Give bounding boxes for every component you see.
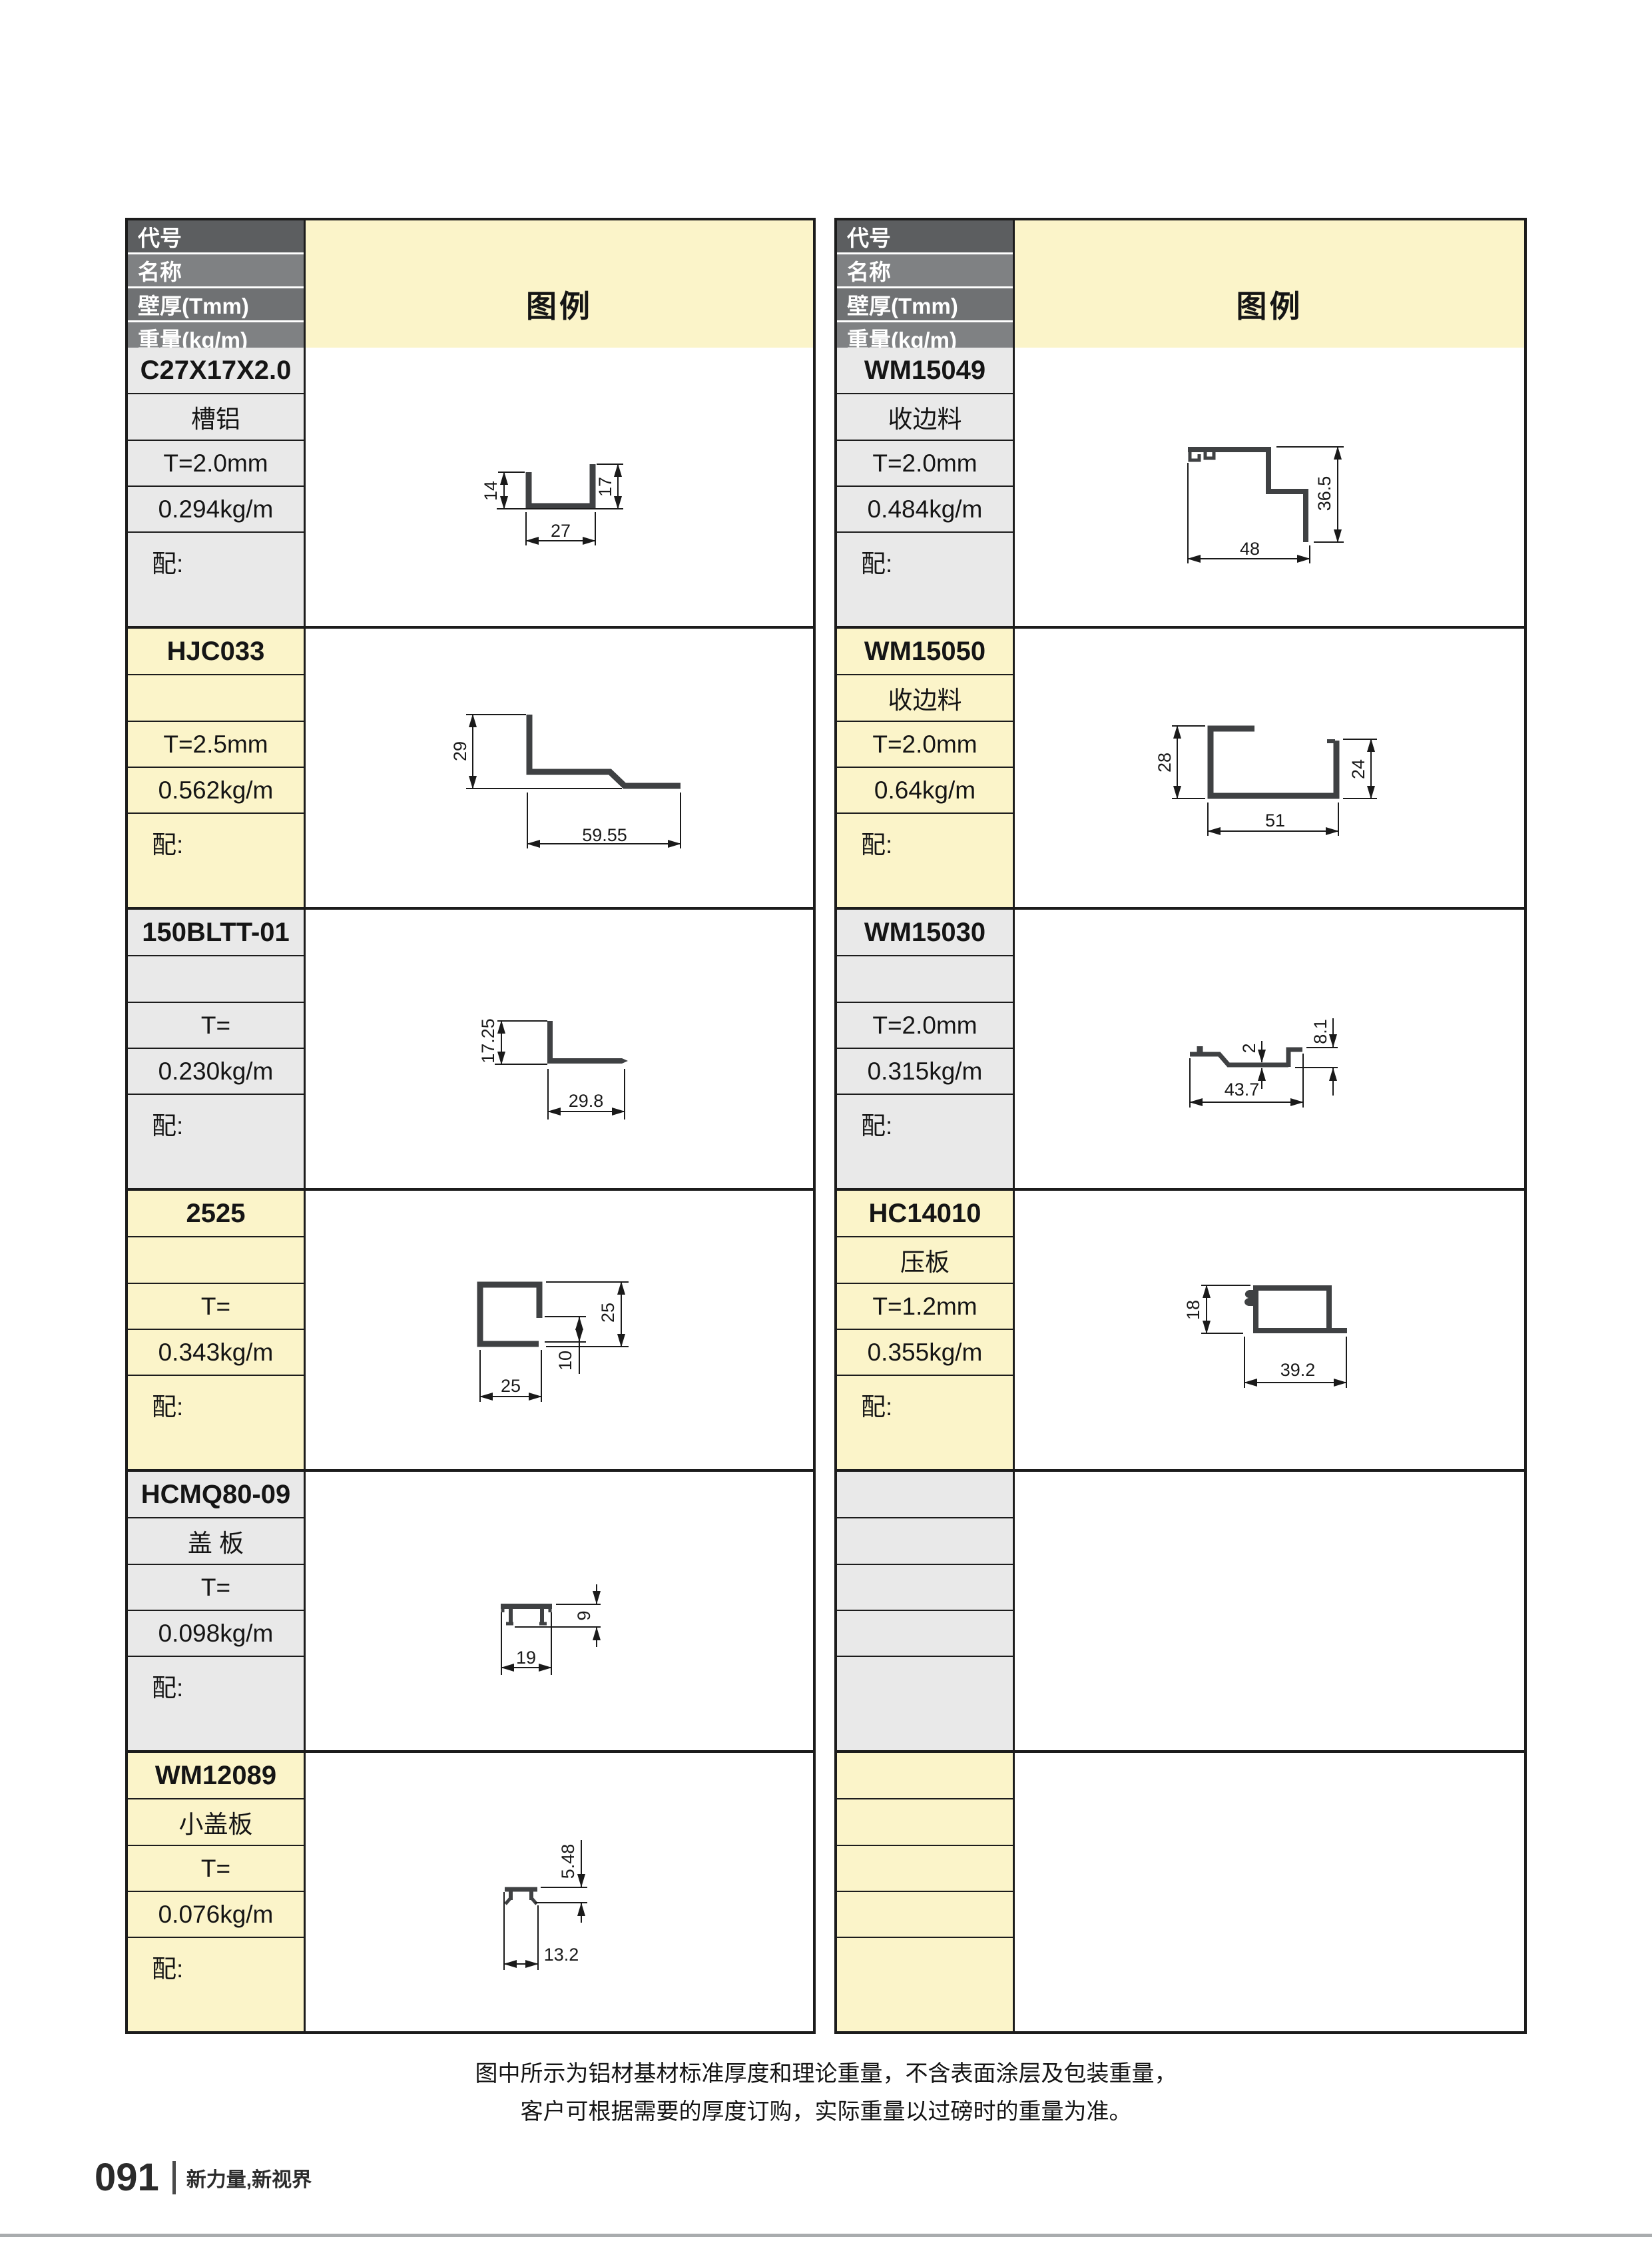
dim-label: 14 — [481, 481, 501, 501]
profile-thickness: T=2.0mm — [837, 441, 1013, 487]
profile-block-wm15050: WM15050 收边料 T=2.0mm 0.64kg/m 配: 28 24 — [837, 629, 1524, 910]
profile-code: HC14010 — [837, 1191, 1013, 1237]
footer-divider — [172, 2161, 176, 2194]
dim-label: 25 — [598, 1303, 618, 1323]
dim-label: 43.7 — [1224, 1080, 1259, 1100]
profile-match: 配: — [837, 1376, 1013, 1469]
profile-drawing-cell: 28 24 51 — [1013, 629, 1524, 907]
dim-label: 9 — [574, 1610, 594, 1620]
profile-name: 收边料 — [837, 394, 1013, 441]
profile-code — [837, 1472, 1013, 1518]
profile-name: 槽铝 — [128, 394, 304, 441]
profile-block-empty — [837, 1472, 1524, 1753]
profile-drawing-cell: 29 59.55 — [304, 629, 813, 907]
dim-label: 24 — [1348, 759, 1368, 779]
profile-thickness: T= — [128, 1565, 304, 1611]
profile-thickness: T= — [128, 1284, 304, 1330]
profile-block-150bltt01: 150BLTT-01 T= 0.230kg/m 配: 17.25 29. — [128, 910, 813, 1191]
profile-weight: 0.355kg/m — [837, 1330, 1013, 1376]
dim-label: 18 — [1183, 1300, 1203, 1320]
profile-match: 配: — [837, 814, 1013, 907]
profile-drawing-cell: 17.25 29.8 — [304, 910, 813, 1188]
profile-weight: 0.484kg/m — [837, 487, 1013, 533]
profile-code: WM15030 — [837, 910, 1013, 956]
profile-match: 配: — [128, 533, 304, 626]
profile-name: 收边料 — [837, 675, 1013, 722]
profile-drawing-cell: 18 39.2 — [1013, 1191, 1524, 1469]
profile-drawing-cell: 9 19 — [304, 1472, 813, 1750]
dim-label: 2 — [1239, 1043, 1259, 1053]
dim-label: 48 — [1239, 539, 1259, 559]
profile-code: 150BLTT-01 — [128, 910, 304, 956]
profile-block-empty — [837, 1753, 1524, 2031]
profile-match: 配: — [837, 1095, 1013, 1188]
profile-name — [837, 956, 1013, 1003]
profile-code: HCMQ80-09 — [128, 1472, 304, 1518]
dim-label: 29.8 — [569, 1091, 604, 1111]
header-label-code: 代号 — [837, 220, 1013, 252]
small-cover-drawing: 5.48 13.2 — [439, 1805, 679, 1979]
edge-trim-u-drawing: 28 24 51 — [1123, 688, 1416, 848]
profile-name: 盖 板 — [128, 1518, 304, 1565]
profile-block-2525: 2525 T= 0.343kg/m 配: 25 1 — [128, 1191, 813, 1472]
profile-thickness: T=2.0mm — [837, 722, 1013, 768]
dim-label: 28 — [1155, 753, 1175, 773]
profile-thickness: T=1.2mm — [837, 1284, 1013, 1330]
dim-label: 36.5 — [1314, 476, 1334, 511]
profile-code — [837, 1753, 1013, 1799]
l-step-drawing: 29 59.55 — [413, 685, 706, 851]
profile-code: HJC033 — [128, 629, 304, 675]
profile-block-hjc033: HJC033 T=2.5mm 0.562kg/m 配: 29 59.55 — [128, 629, 813, 910]
profile-code: 2525 — [128, 1191, 304, 1237]
tray-profile-drawing: 2 8.1 43.7 — [1123, 982, 1416, 1116]
profile-thickness: T=2.0mm — [837, 1003, 1013, 1049]
profile-code: WM15049 — [837, 348, 1013, 394]
profile-thickness — [837, 1565, 1013, 1611]
profile-drawing-cell: 5.48 13.2 — [304, 1753, 813, 2031]
profile-thickness: T=2.5mm — [128, 722, 304, 768]
profile-match: 配: — [837, 533, 1013, 626]
header-label-code: 代号 — [128, 220, 304, 252]
profile-name: 小盖板 — [128, 1799, 304, 1846]
dim-label: 25 — [501, 1376, 521, 1396]
profile-name — [837, 1799, 1013, 1846]
profile-weight: 0.562kg/m — [128, 768, 304, 814]
dim-label: 51 — [1264, 810, 1284, 830]
u-channel-drawing: 14 17 27 — [426, 407, 692, 567]
dim-label: 59.55 — [582, 825, 627, 845]
catalog-page: 代号 名称 壁厚(Tmm) 重量(kg/m) 配套 图例 C27X17X2.0 … — [0, 0, 1652, 2241]
profile-block-c27x17x2: C27X17X2.0 槽铝 T=2.0mm 0.294kg/m 配: 14 17 — [128, 348, 813, 629]
profile-match — [837, 1657, 1013, 1750]
header-label-name: 名称 — [128, 254, 304, 286]
square-tube-drawing: 25 10 25 — [426, 1243, 692, 1417]
profile-table-left: 代号 名称 壁厚(Tmm) 重量(kg/m) 配套 图例 C27X17X2.0 … — [125, 218, 816, 2034]
profile-code: WM15050 — [837, 629, 1013, 675]
footnote-line-1: 图中所示为铝材基材标准厚度和理论重量，不含表面涂层及包装重量， — [0, 2055, 1652, 2093]
press-plate-drawing: 18 39.2 — [1123, 1257, 1416, 1403]
profile-block-hcmq80: HCMQ80-09 盖 板 T= 0.098kg/m 配: — [128, 1472, 813, 1753]
profile-block-hc14010: HC14010 压板 T=1.2mm 0.355kg/m 配: 18 — [837, 1191, 1524, 1472]
profile-weight: 0.076kg/m — [128, 1892, 304, 1938]
profile-weight: 0.64kg/m — [837, 768, 1013, 814]
profile-match: 配: — [128, 1095, 304, 1188]
profile-match: 配: — [128, 1938, 304, 2031]
header-label-name: 名称 — [837, 254, 1013, 286]
table-header: 代号 名称 壁厚(Tmm) 重量(kg/m) 配套 图例 — [128, 220, 813, 348]
edge-trim-drawing: 36.5 48 — [1123, 407, 1416, 567]
profile-match: 配: — [128, 1376, 304, 1469]
profile-drawing-cell — [1013, 1472, 1524, 1750]
dim-label: 8.1 — [1310, 1019, 1330, 1044]
profile-block-wm12089: WM12089 小盖板 T= 0.076kg/m 配: 5.48 — [128, 1753, 813, 2031]
dim-label: 10 — [555, 1351, 575, 1371]
profile-block-wm15049: WM15049 收边料 T=2.0mm 0.484kg/m 配: 36.5 — [837, 348, 1524, 629]
profile-match: 配: — [128, 1657, 304, 1750]
profile-code: WM12089 — [128, 1753, 304, 1799]
profile-name: 压板 — [837, 1237, 1013, 1284]
profile-block-wm15030: WM15030 T=2.0mm 0.315kg/m 配: 2 — [837, 910, 1524, 1191]
profile-match: 配: — [128, 814, 304, 907]
profile-drawing-cell: 14 17 27 — [304, 348, 813, 626]
profile-drawing-cell: 25 10 25 — [304, 1191, 813, 1469]
profile-name — [128, 675, 304, 722]
profile-name — [837, 1518, 1013, 1565]
profile-thickness: T=2.0mm — [128, 441, 304, 487]
profile-drawing-cell: 36.5 48 — [1013, 348, 1524, 626]
header-label-thickness: 壁厚(Tmm) — [128, 288, 304, 320]
footnote: 图中所示为铝材基材标准厚度和理论重量，不含表面涂层及包装重量， 客户可根据需要的… — [0, 2055, 1652, 2131]
page-footer: 091 新力量,新视界 — [95, 2155, 312, 2200]
angle-drawing: 17.25 29.8 — [426, 969, 692, 1129]
profile-thickness: T= — [128, 1003, 304, 1049]
table-header: 代号 名称 壁厚(Tmm) 重量(kg/m) 配套 图例 — [837, 220, 1524, 348]
bottom-rule — [0, 2234, 1652, 2237]
profile-weight: 0.098kg/m — [128, 1611, 304, 1657]
dim-label: 17.25 — [478, 1018, 498, 1064]
profile-drawing-cell — [1013, 1753, 1524, 2031]
dim-label: 27 — [551, 521, 571, 541]
profile-thickness — [837, 1846, 1013, 1892]
profile-weight: 0.230kg/m — [128, 1049, 304, 1095]
header-label-thickness: 壁厚(Tmm) — [837, 288, 1013, 320]
dim-label: 17 — [595, 477, 615, 497]
profile-weight — [837, 1611, 1013, 1657]
dim-label: 29 — [450, 741, 470, 761]
footnote-line-2: 客户可根据需要的厚度订购，实际重量以过磅时的重量为准。 — [0, 2093, 1652, 2131]
footer-tagline: 新力量,新视界 — [186, 2163, 312, 2192]
dim-label: 13.2 — [544, 1945, 579, 1965]
profile-weight: 0.294kg/m — [128, 487, 304, 533]
profile-weight: 0.343kg/m — [128, 1330, 304, 1376]
profile-table-right: 代号 名称 壁厚(Tmm) 重量(kg/m) 配套 图例 WM15049 收边料… — [834, 218, 1527, 2034]
profile-code: C27X17X2.0 — [128, 348, 304, 394]
profile-match — [837, 1938, 1013, 2031]
profile-drawing-cell: 2 8.1 43.7 — [1013, 910, 1524, 1188]
dim-label: 19 — [516, 1648, 536, 1668]
cover-plate-drawing: 9 19 — [426, 1538, 692, 1684]
profile-name — [128, 956, 304, 1003]
profile-weight — [837, 1892, 1013, 1938]
profile-weight: 0.315kg/m — [837, 1049, 1013, 1095]
dim-label: 5.48 — [558, 1844, 578, 1879]
dim-label: 39.2 — [1280, 1360, 1315, 1380]
profile-thickness: T= — [128, 1846, 304, 1892]
page-number: 091 — [95, 2155, 159, 2200]
profile-name — [128, 1237, 304, 1284]
